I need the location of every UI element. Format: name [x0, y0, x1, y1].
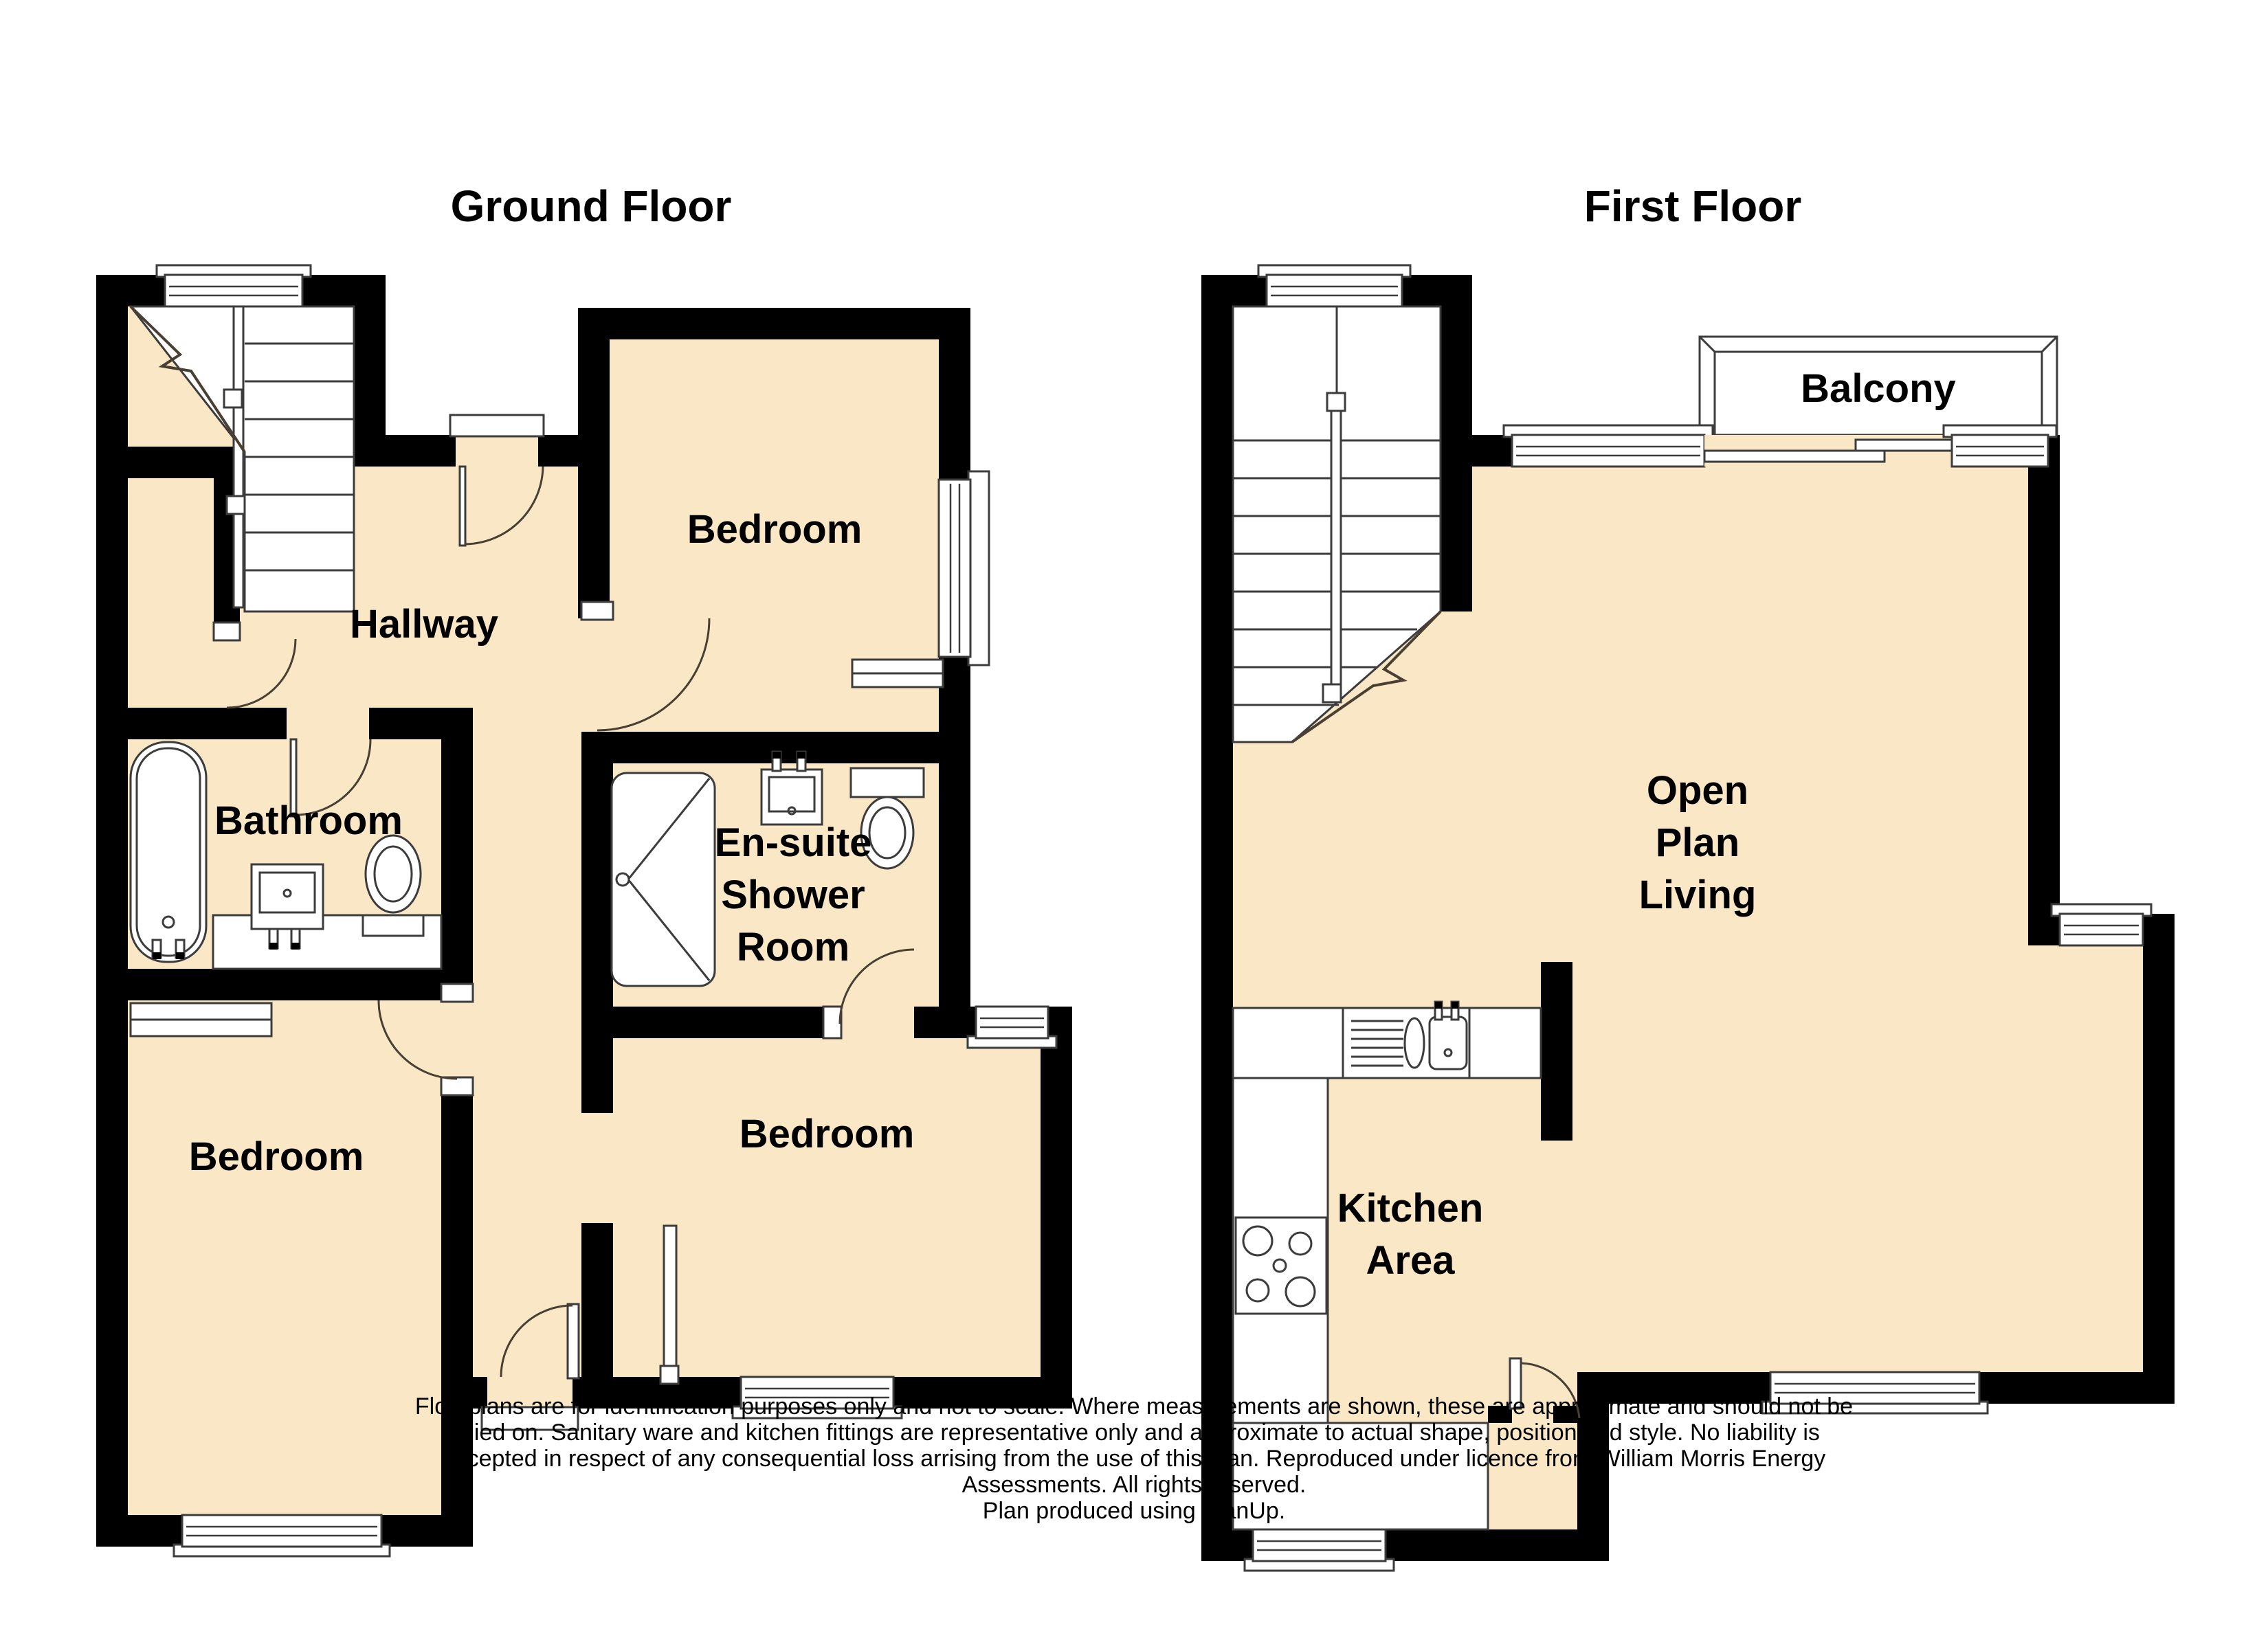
room-label-ensuite-1: En-suite — [715, 820, 872, 865]
bathtub — [131, 742, 206, 962]
window — [968, 1007, 1056, 1048]
wardrobe — [852, 660, 943, 687]
room-label-bathroom: Bathroom — [214, 798, 403, 843]
window — [1258, 265, 1410, 306]
first-floor-title: First Floor — [1584, 181, 1801, 231]
window — [2052, 904, 2151, 945]
window — [1504, 425, 1713, 467]
ground-floor-title: Ground Floor — [451, 181, 732, 231]
room-label-bedroom-bottom-right: Bedroom — [740, 1112, 915, 1156]
room-label-open-plan-2: Plan — [1656, 820, 1740, 865]
disclaimer-line: accepted in respect of any consequential… — [0, 1446, 2268, 1472]
sliding-door — [1704, 435, 1967, 467]
room-label-balcony: Balcony — [1801, 366, 1956, 411]
room-label-ensuite-3: Room — [737, 925, 849, 969]
window — [1245, 1529, 1394, 1571]
room-label-bedroom-top: Bedroom — [687, 507, 863, 552]
room-label-bedroom-bottom-left: Bedroom — [189, 1134, 364, 1179]
ground-floor-plan: Ground Floor — [96, 181, 1072, 1556]
room-label-open-plan-3: Living — [1639, 873, 1757, 917]
room-label-kitchen-1: Kitchen — [1337, 1186, 1484, 1231]
shower-tray — [612, 773, 715, 986]
wardrobe — [131, 1003, 271, 1036]
disclaimer-line: relied on. Sanitary ware and kitchen fit… — [0, 1420, 2268, 1446]
bathroom-toilet — [363, 835, 423, 936]
disclaimer: Floorplans are for identification purpos… — [0, 1393, 2268, 1524]
window — [1944, 425, 2056, 467]
first-floor-plan: First Floor — [1201, 181, 2175, 1571]
disclaimer-line: Plan produced using PlanUp. — [0, 1498, 2268, 1524]
room-label-open-plan-1: Open — [1647, 768, 1748, 813]
window — [157, 265, 311, 306]
room-label-kitchen-2: Area — [1366, 1238, 1456, 1283]
room-label-ensuite-2: Shower — [721, 873, 865, 917]
window — [939, 471, 989, 665]
floorplan-page: Ground Floor — [0, 0, 2268, 1649]
disclaimer-line: Assessments. All rights reserved. — [0, 1472, 2268, 1498]
room-label-hallway: Hallway — [350, 602, 498, 647]
disclaimer-line: Floorplans are for identification purpos… — [0, 1393, 2268, 1420]
kitchen-sink — [1343, 1002, 1469, 1078]
hob — [1236, 1218, 1326, 1314]
